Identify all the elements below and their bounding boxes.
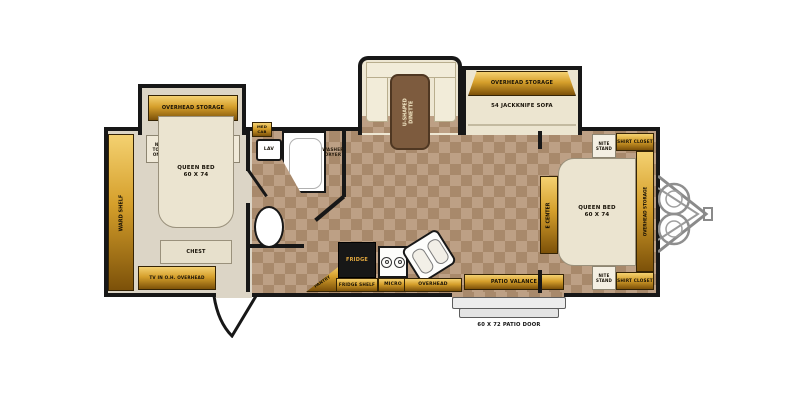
dinette-label: U-SHAPED DINETTE bbox=[404, 98, 416, 126]
ward-shelf-label: WARD SHELF bbox=[118, 194, 124, 231]
wall-segment bbox=[246, 131, 250, 171]
entertainment-center: E CENTER bbox=[540, 176, 558, 254]
front-overhead-storage-label: OVERHEAD STORAGE bbox=[643, 187, 648, 237]
wall-segment bbox=[246, 203, 250, 293]
ward-shelf-cabinet: WARD SHELF bbox=[108, 134, 134, 291]
floorplan: OVERHEAD STORAGE WARD SHELF N/S TOPS ONL… bbox=[0, 0, 800, 400]
rear-queen-bed: QUEEN BED 60 X 74 bbox=[158, 116, 234, 228]
fridge: FRIDGE bbox=[338, 242, 376, 278]
front-queen-bed: QUEEN BED 60 X 74 bbox=[558, 158, 636, 266]
lav-sink: LAV bbox=[256, 139, 282, 161]
sofa-overhead-storage: OVERHEAD STORAGE bbox=[468, 71, 576, 96]
fridge-shelf: FRIDGE SHELF bbox=[336, 278, 378, 292]
toilet bbox=[254, 206, 284, 248]
burner-center-icon bbox=[385, 260, 389, 264]
wall-segment bbox=[538, 131, 542, 149]
chest-cabinet: CHEST bbox=[160, 240, 232, 264]
tv-overhead-cabinet: TV IN O.H. OVERHEAD bbox=[138, 266, 216, 290]
front-overhead-storage: OVERHEAD STORAGE bbox=[636, 151, 654, 272]
patio-door-label: 60 X 72 PATIO DOOR bbox=[452, 320, 566, 330]
sofa-seat-line bbox=[468, 124, 576, 126]
dinette-table: U-SHAPED DINETTE bbox=[390, 74, 430, 150]
patio-step bbox=[459, 308, 559, 318]
shirt-closet-bottom: SHIRT CLOSET bbox=[616, 272, 654, 290]
burner-center-icon bbox=[398, 260, 402, 264]
patio-valance: PATIO VALANCE bbox=[464, 274, 564, 290]
nite-stand-top: NITE STAND bbox=[592, 134, 616, 158]
hitch-propane-icon bbox=[658, 168, 716, 260]
kitchen-overhead-cabinet: OVERHEAD bbox=[404, 278, 462, 292]
burner-icon bbox=[394, 257, 405, 268]
jackknife-sofa: 54 JACKKNIFE SOFA bbox=[470, 99, 574, 113]
washer-dryer-label: WASHER DRYER bbox=[316, 140, 350, 164]
nite-stand-bottom: NITE STAND bbox=[592, 266, 616, 290]
entry-door-swing-icon bbox=[208, 296, 260, 338]
medicine-cabinet: MED CAB bbox=[252, 122, 272, 137]
burner-icon bbox=[381, 257, 392, 268]
shirt-closet-top: SHIRT CLOSET bbox=[616, 133, 654, 151]
wall-segment bbox=[538, 270, 542, 293]
e-center-label: E CENTER bbox=[547, 202, 552, 228]
